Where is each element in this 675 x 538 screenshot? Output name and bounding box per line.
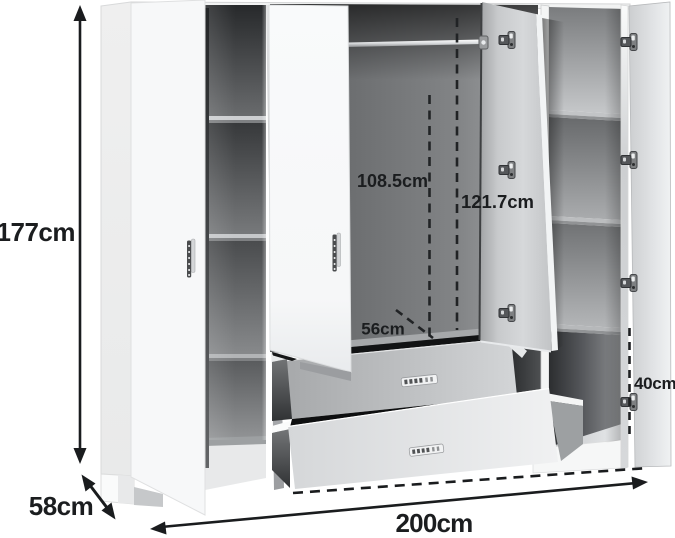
svg-text:121.7cm: 121.7cm [461,191,534,212]
svg-text:108.5cm: 108.5cm [357,171,428,191]
svg-text:40cm: 40cm [634,374,675,393]
svg-text:177cm: 177cm [0,217,75,247]
svg-text:200cm: 200cm [396,508,473,538]
svg-text:56cm: 56cm [361,320,404,339]
svg-text:58cm: 58cm [29,491,94,521]
